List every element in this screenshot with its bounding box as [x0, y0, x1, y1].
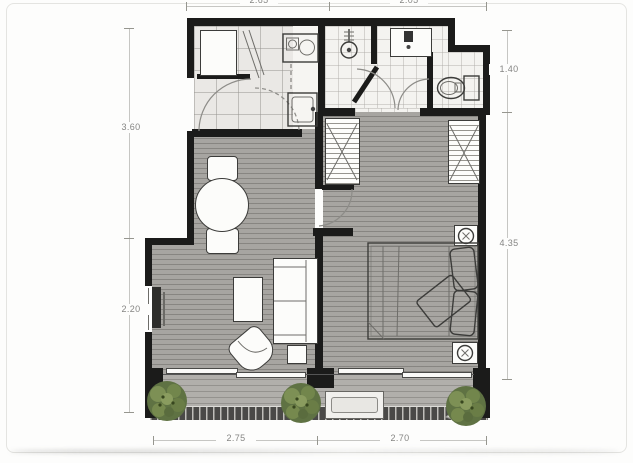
sliding-door-panel: [236, 372, 306, 378]
coffee-table-icon: [233, 277, 263, 322]
wall-top: [187, 18, 455, 26]
bedroom-door-leaf: [322, 185, 354, 190]
balcony-railing: [150, 406, 488, 420]
side-table-icon: [287, 345, 307, 364]
wall-left-step: [145, 238, 194, 245]
floor-plan-canvas: 2.65 2.05 3.60 2.20 1.40 4.35 2.75 2.70: [0, 0, 633, 463]
wall-balcony-left: [145, 368, 163, 418]
sliding-door-panel: [338, 368, 404, 374]
dim-label-left-lower: 2.20: [111, 304, 151, 315]
page-bottom-shadow: [10, 449, 620, 454]
wall-toilet-partition: [427, 52, 433, 112]
dim-line-right: [507, 30, 508, 380]
dim-label-bottom-right: 2.70: [380, 433, 420, 444]
wall-bedroom-living-upper: [315, 112, 323, 189]
tv-console: [152, 287, 161, 328]
refrigerator-icon: [200, 30, 237, 76]
wardrobe-left-icon: [325, 118, 360, 185]
dim-label-top-right: 2.05: [390, 0, 428, 6]
air-conditioner-icon: [325, 391, 384, 419]
tv-icon: [163, 292, 165, 326]
wall-shower-partition: [371, 26, 377, 64]
ceiling-fan-symbol: [452, 342, 478, 364]
sliding-door-panel: [402, 372, 472, 378]
dim-line-bottom: [153, 440, 487, 441]
dining-table-icon: [195, 178, 249, 232]
wall-left-upper-b: [187, 131, 194, 245]
wall-balcony-right: [473, 368, 490, 418]
wall-kitchen-bath: [318, 26, 325, 115]
dim-line-left: [129, 28, 130, 413]
dim-line-top: [187, 6, 487, 7]
sliding-door-panel: [166, 368, 238, 374]
ceiling-fan-symbol: [454, 225, 478, 246]
toilet-room-floor: [448, 52, 483, 112]
sofa-icon: [273, 258, 318, 344]
wall-right-upper: [483, 45, 490, 115]
wardrobe-right-icon: [448, 120, 480, 184]
dim-label-bottom-left: 2.75: [216, 433, 256, 444]
dim-label-left-upper: 3.60: [111, 122, 151, 133]
dim-label-right-lower: 4.35: [489, 238, 529, 249]
wall-bedroom-stub: [313, 228, 353, 236]
dim-label-top-left: 2.65: [240, 0, 278, 6]
wall-left-upper-a: [187, 18, 194, 78]
wall-bath-bottom-left: [318, 108, 355, 116]
dim-label-right-upper: 1.40: [489, 64, 529, 75]
ac-grille: [331, 397, 378, 413]
vanity-sink-icon: [390, 28, 432, 57]
wall-kitchen-bottom: [192, 129, 302, 137]
